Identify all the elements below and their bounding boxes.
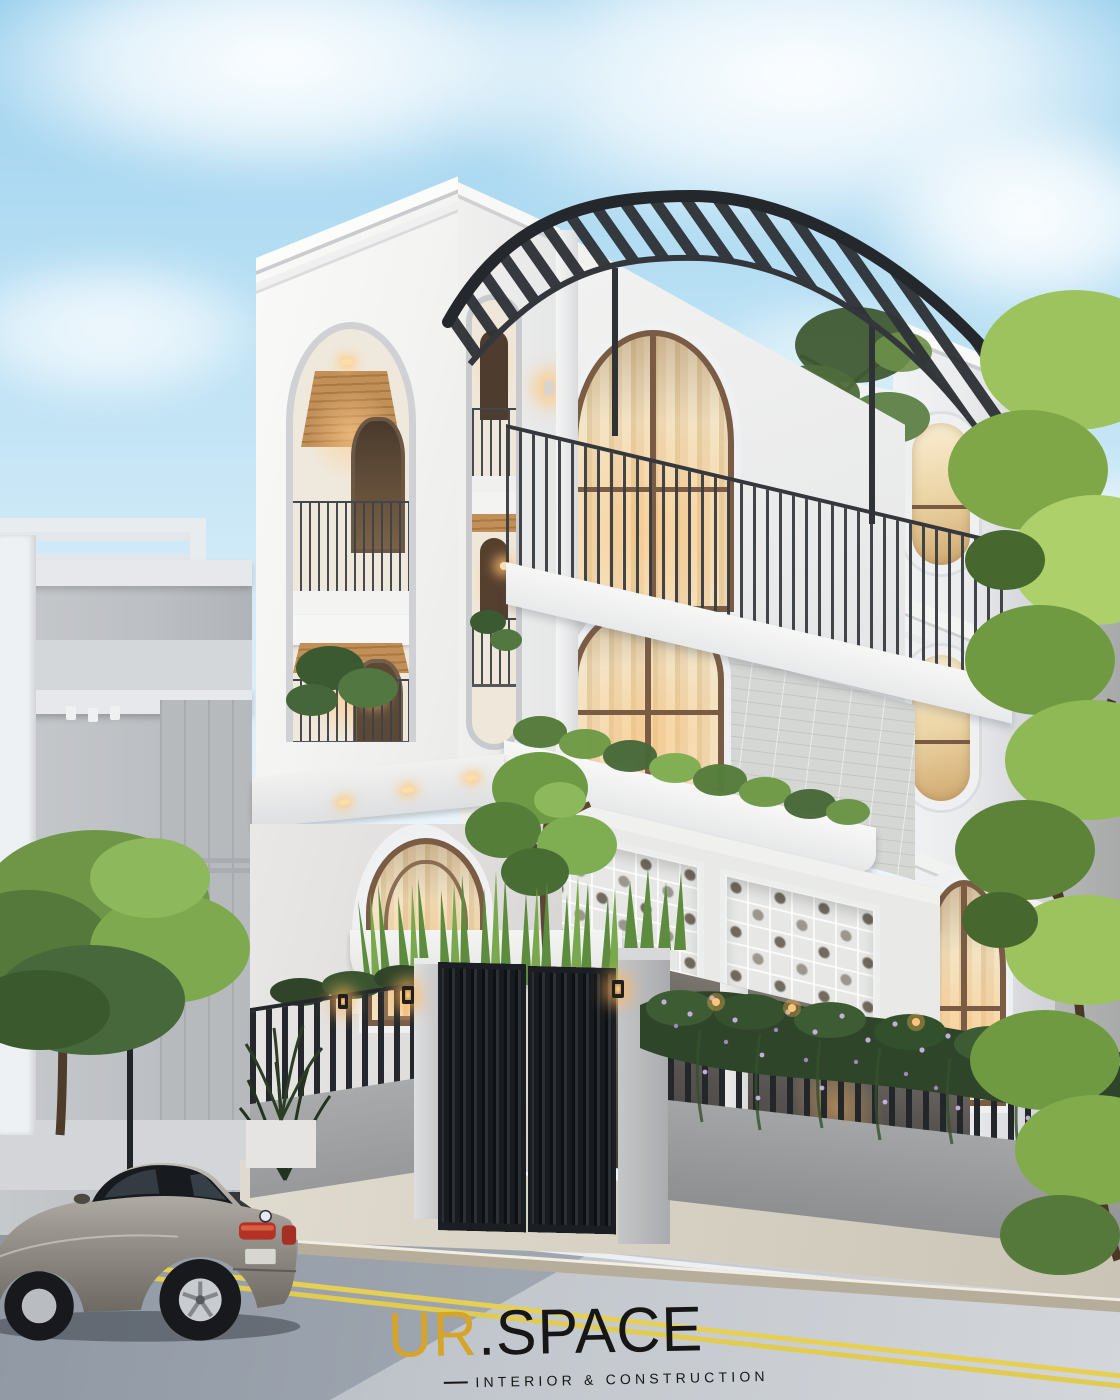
watermark-logo: UR.SPACE INTERIOR & CONSTRUCTION: [387, 1292, 769, 1392]
foreground: [0, 0, 1120, 1400]
tagline-rule: [443, 1381, 467, 1384]
spiky-plant: [246, 1026, 322, 1120]
brand-secondary: .SPACE: [477, 1292, 704, 1370]
tree-left: [0, 830, 250, 1135]
sedan-car: [0, 1163, 300, 1342]
scene: UR.SPACE INTERIOR & CONSTRUCTION: [0, 0, 1120, 1400]
low-planter: [246, 1120, 316, 1168]
brand-wordmark: UR.SPACE: [387, 1291, 768, 1372]
tree-right: [948, 290, 1120, 1275]
brand-primary: UR: [387, 1297, 479, 1372]
